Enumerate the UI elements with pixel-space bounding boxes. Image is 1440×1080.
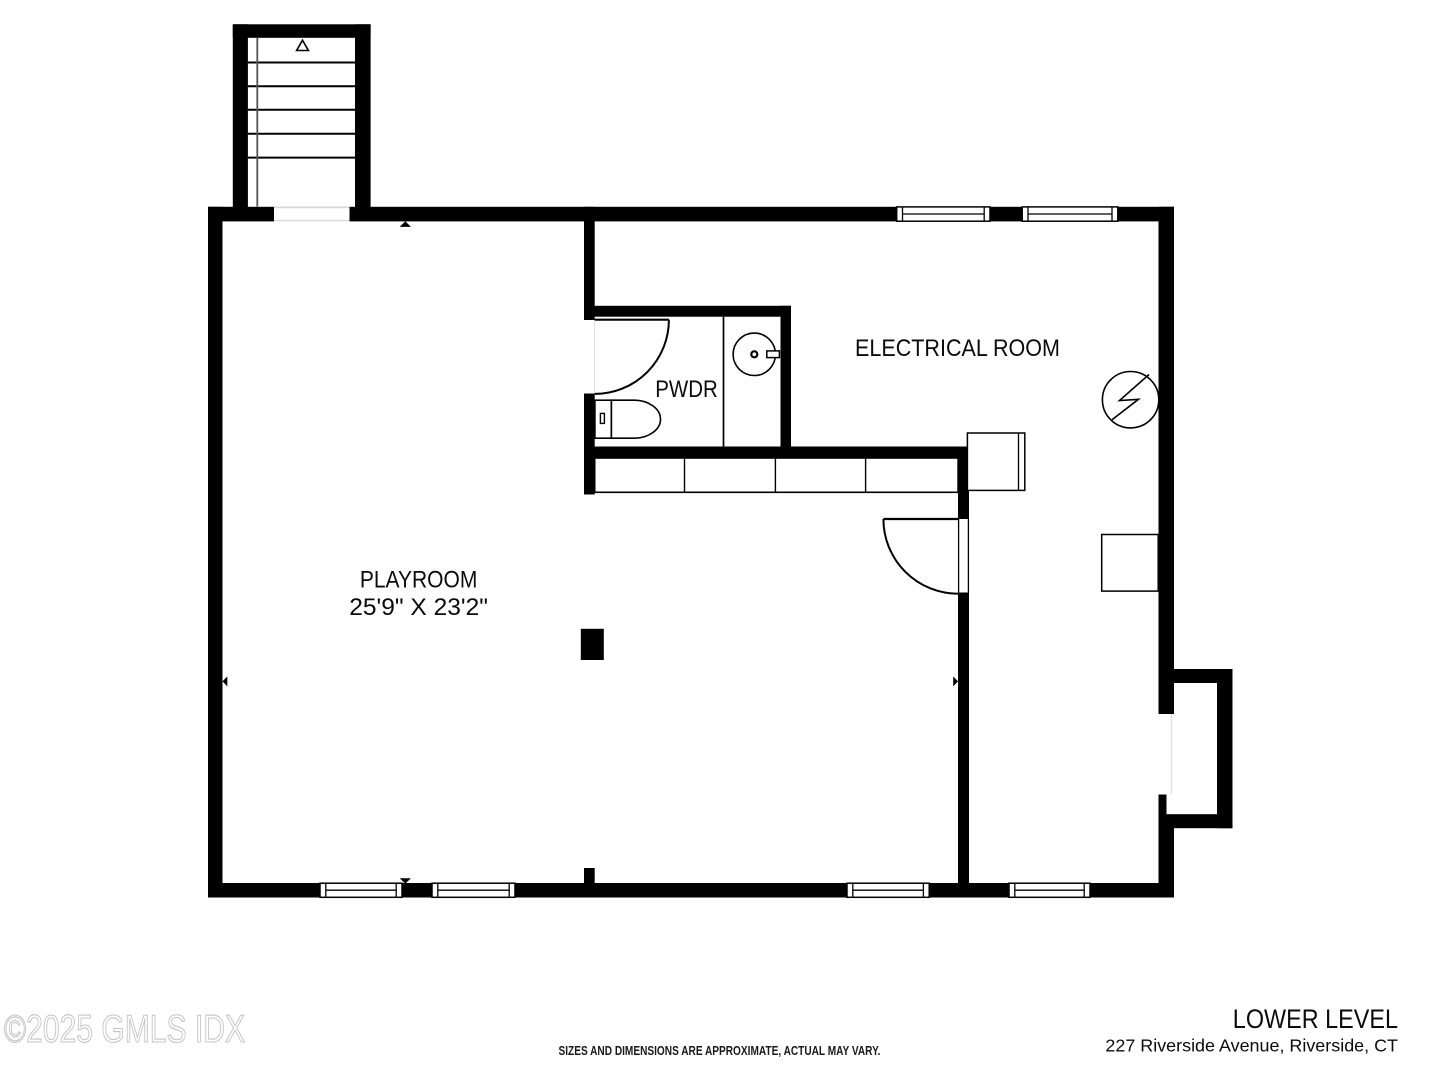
svg-text:PLAYROOM: PLAYROOM xyxy=(360,567,478,594)
svg-text:©2025 GMLS IDX: ©2025 GMLS IDX xyxy=(4,1008,245,1051)
svg-text:PWDR: PWDR xyxy=(655,376,718,403)
svg-text:LOWER LEVEL: LOWER LEVEL xyxy=(1233,1004,1398,1034)
svg-text:227 Riverside Avenue, Riversid: 227 Riverside Avenue, Riverside, CT xyxy=(1105,1036,1398,1056)
svg-text:25'9" X 23'2": 25'9" X 23'2" xyxy=(349,594,488,621)
svg-text:SIZES AND DIMENSIONS ARE APPRO: SIZES AND DIMENSIONS ARE APPROXIMATE, AC… xyxy=(559,1044,881,1058)
svg-text:ELECTRICAL ROOM: ELECTRICAL ROOM xyxy=(855,335,1060,362)
